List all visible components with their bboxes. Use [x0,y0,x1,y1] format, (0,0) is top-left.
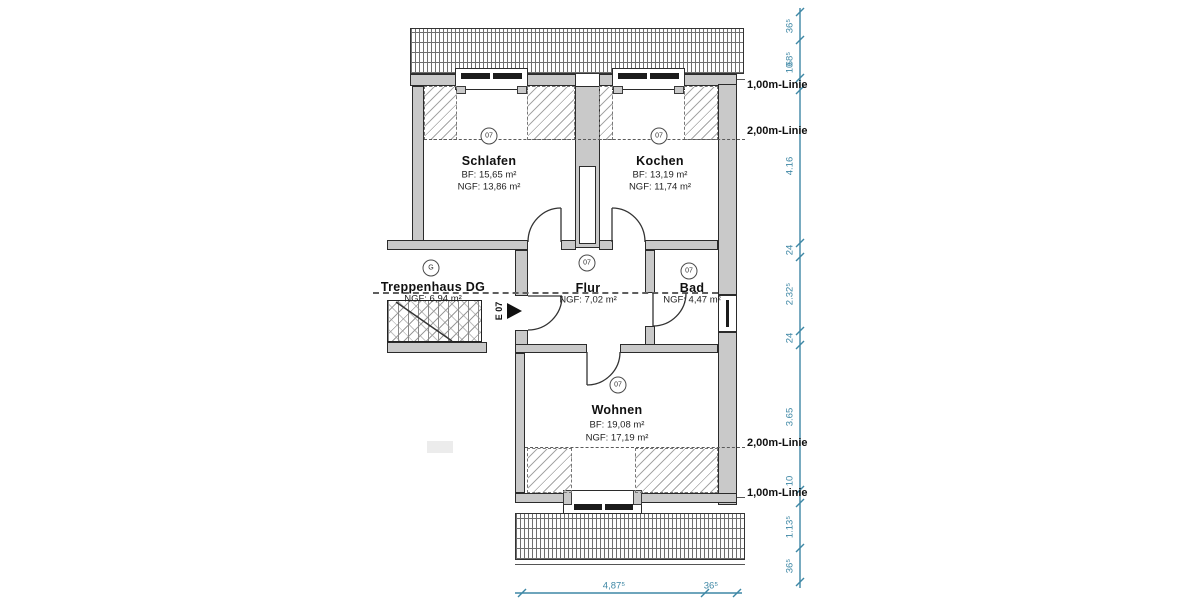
wall-mid-4 [645,240,718,250]
dim-right-10: 36⁵ [785,559,796,574]
room-label-wohnen: Wohnen [592,403,643,417]
headroom-hatch-bottom-2 [635,448,718,493]
chimney-shaft [579,166,596,244]
dormer-jamb-1 [456,86,466,94]
wall-top-2 [527,74,576,86]
room-marker-wohnen: 07 [610,377,627,394]
window-schlafen-bar-2 [493,73,522,79]
room-area-ngf-kochen: NGF: 11,74 m² [629,182,691,193]
dim-right-6: 24 [785,333,796,344]
marker-text: 07 [655,133,663,140]
marker-text: 07 [485,133,493,140]
wall-bottom-1 [515,493,567,503]
dim-right-4: 24 [785,245,796,256]
wall-schlafen-left [412,86,424,248]
floor-plan-canvas: Schlafen BF: 15,65 m² NGF: 13,86 m² Koch… [0,0,1200,600]
dormer-jamb-3 [613,86,623,94]
marker-text: 07 [614,382,622,389]
room-marker-schlafen: 07 [481,128,498,145]
marker-text: G [428,265,433,272]
faded-wall-fragment [427,441,453,453]
one-meter-line-label-bottom: 1,00m-Linie [747,487,808,499]
dim-right-2: 10 [785,63,796,74]
roof-band-bottom [515,513,745,560]
two-meter-line-bottom [525,447,745,448]
window-bad-bar [726,300,729,327]
wall-top-3 [599,74,613,86]
room-area-ngf-schlafen: NGF: 13,86 m² [458,182,521,193]
window-kochen-bar-2 [650,73,679,79]
wall-right-lower [718,332,737,505]
dormer-wohnen [563,490,642,514]
window-kochen-bar-1 [618,73,647,79]
room-area-ngf-flur: NGF: 7,02 m² [559,295,617,306]
room-label-flur: Flur [576,281,601,295]
headroom-hatch-top-2 [527,86,575,140]
two-meter-line-label-bottom: 2,00m-Linie [747,437,808,449]
one-meter-connector-bottom [737,497,745,498]
wall-mid-3 [599,240,613,250]
staircase [387,300,482,342]
headroom-hatch-top-4 [684,86,718,140]
wall-wohnen-left [515,353,525,493]
dim-right-3: 4.16 [785,157,796,176]
room-marker-flur: 07 [579,255,596,272]
dim-right-9: 1.13⁵ [785,516,796,538]
dim-right-7: 3.65 [785,408,796,427]
wall-flur-bad-upper [645,250,655,293]
dim-right-8: 10 [785,476,796,487]
wall-stairs-bottom [387,342,487,353]
room-marker-bad: 07 [681,263,698,280]
room-label-treppenhaus: Treppenhaus DG [381,280,485,294]
wall-flur-left-upper [515,250,528,296]
room-area-bf-schlafen: BF: 15,65 m² [462,170,517,181]
room-marker-kochen: 07 [651,128,668,145]
dim-bottom-1: 36⁵ [704,581,719,592]
dormer-jamb-4 [674,86,684,94]
marker-text: 07 [685,268,693,275]
dormer-jamb-2 [517,86,527,94]
room-label-schlafen: Schlafen [462,154,517,168]
dim-right-0: 36⁵ [785,19,796,34]
wall-wohnen-top-1 [515,344,587,353]
dim-bottom-0: 4,87⁵ [603,581,625,592]
entrance-label: E 07 [494,302,504,321]
room-area-bf-wohnen: BF: 19,08 m² [590,420,645,431]
marker-text: 07 [583,260,591,267]
headroom-hatch-bottom-1 [527,448,572,493]
roof-base-line [515,564,745,565]
room-label-bad: Bad [680,281,705,295]
wall-right-upper [718,84,737,295]
wall-wohnen-top-2 [620,344,718,353]
room-marker-treppenhaus: G [423,260,440,277]
window-wohnen-bar-1 [574,504,602,510]
room-label-kochen: Kochen [636,154,684,168]
wall-top-1 [410,74,456,86]
two-meter-line-label-top: 2,00m-Linie [747,125,808,137]
room-area-ngf-bad: NGF: 4,47 m² [663,295,721,306]
window-schlafen-bar-1 [461,73,490,79]
room-area-ngf-treppenhaus: NGF: 6,94 m² [404,294,462,305]
headroom-hatch-top-3 [599,86,613,140]
room-area-bf-kochen: BF: 13,19 m² [633,170,688,181]
headroom-hatch-top-1 [424,86,457,140]
dim-right-5: 2.32⁵ [785,283,796,305]
two-meter-line-top [424,139,745,140]
window-wohnen-bar-2 [605,504,633,510]
entrance-arrow-icon [507,303,522,319]
one-meter-line-label-top: 1,00m-Linie [747,79,808,91]
wall-bottom-2 [638,493,737,503]
wall-mid-1 [387,240,528,250]
room-area-ngf-wohnen: NGF: 17,19 m² [586,433,649,444]
wall-mid-2 [561,240,576,250]
one-meter-connector-top [737,79,745,80]
